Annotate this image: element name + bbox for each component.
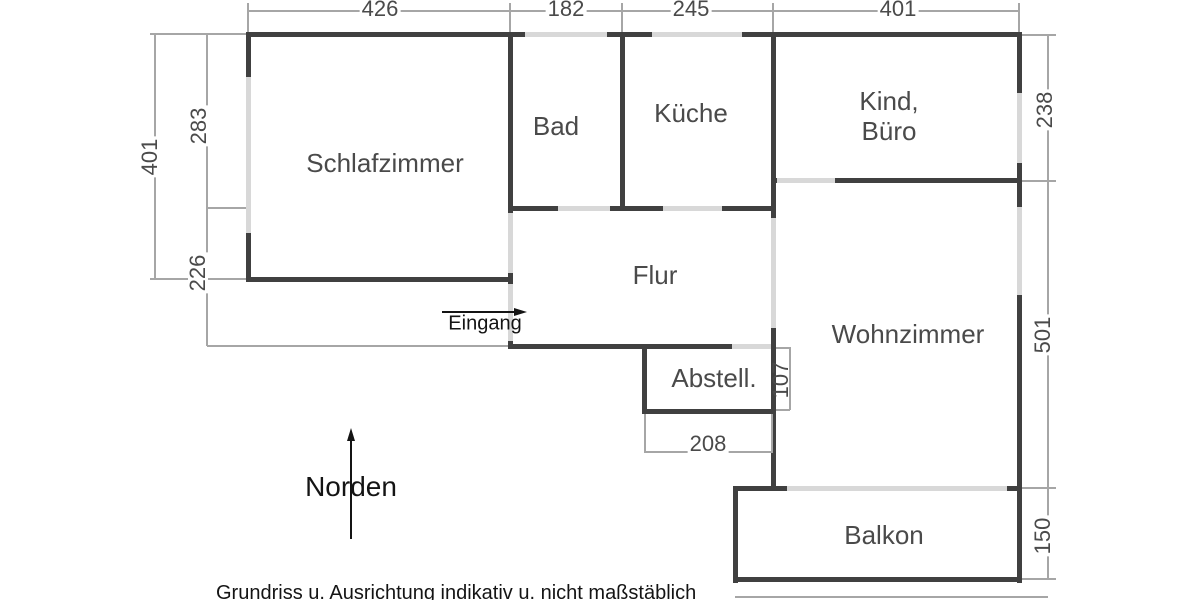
dimension-line [771,414,773,453]
window-or-door-opening [771,218,776,328]
window-or-door-opening [732,344,771,349]
dimension-line [207,345,508,347]
entrance-label: Eingang [448,313,521,336]
window-or-door-opening [246,77,251,233]
window-or-door-opening [652,32,742,37]
wall-segment [642,409,776,414]
wall-segment [620,32,625,211]
dimension-top-schlafzimmer: 426 [360,0,401,19]
wall-segment [733,486,738,583]
dimension-line [150,33,246,35]
window-or-door-opening [787,486,1007,491]
dimension-line [207,207,246,209]
dimension-line [1022,578,1056,580]
dimension-line [621,3,623,32]
dimension-right-balkon: 150 [1033,516,1053,557]
window-or-door-opening [1017,93,1022,163]
north-arrow-icon [347,428,355,441]
dimension-line [1022,487,1056,489]
window-or-door-opening [508,213,513,273]
wall-segment [733,577,1022,582]
dimension-right-kind-buero: 238 [1035,90,1055,131]
room-label-kind-buero: Kind, Büro [859,86,918,146]
dimension-line [509,3,511,32]
north-arrow-shaft [350,440,352,539]
dimension-line [1022,180,1056,182]
dimension-top-bad: 182 [546,0,587,19]
dimension-line [1022,34,1056,36]
dimension-line [772,3,774,32]
dimension-top-kind-buero: 401 [878,0,919,19]
window-or-door-opening [558,206,610,211]
window-or-door-opening [525,32,607,37]
room-label-kind-buero-line2: Büro [862,116,917,146]
window-or-door-opening [1017,207,1022,295]
room-label-kueche: Küche [654,98,728,128]
dimension-left-lower: 226 [188,253,208,294]
dimension-left-upper: 283 [189,106,209,147]
wall-segment [246,277,513,282]
wall-segment [246,32,1022,37]
dimension-line [247,3,249,32]
dimension-top-kueche: 245 [671,0,712,19]
room-label-abstell: Abstell. [671,363,756,393]
room-label-schlafzimmer: Schlafzimmer [306,148,463,178]
dimension-line [1018,3,1020,32]
window-or-door-opening [777,178,835,183]
room-label-bad: Bad [533,111,579,141]
dimension-line [735,596,1048,598]
room-label-balkon: Balkon [844,520,924,550]
window-or-door-opening [663,206,722,211]
dimension-line [644,414,646,453]
disclaimer-text: Grundriss u. Ausrichtung indikativ u. ni… [216,582,696,600]
wall-segment [642,344,647,414]
room-label-kind-buero-line1: Kind, [859,86,918,116]
floorplan-canvas: 426 182 245 401 401 283 226 238 501 150 … [0,0,1200,600]
dimension-abstell-height: 107 [771,360,791,401]
dimension-abstell-width: 208 [688,434,729,454]
dimension-line [776,409,790,411]
dimension-line [206,33,208,346]
room-label-wohnzimmer: Wohnzimmer [832,319,985,349]
room-label-flur: Flur [633,260,678,290]
dimension-line [776,347,790,349]
wall-segment [508,206,776,211]
dimension-right-wohnzimmer: 501 [1033,315,1053,356]
dimension-left-outer: 401 [140,137,160,178]
